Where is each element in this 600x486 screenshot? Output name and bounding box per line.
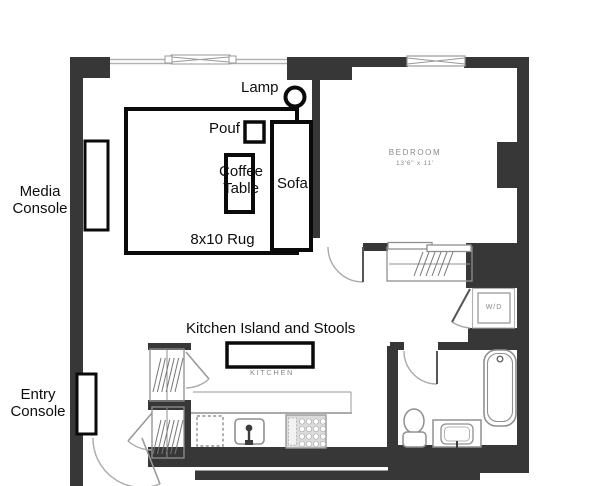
bedroom-door-swing-arc [328,247,363,282]
wd-door-leaf [452,289,470,322]
bathtub-inner [488,354,513,422]
lower-closet-door-leaf [128,413,152,441]
lamp-label: Lamp [241,80,279,97]
kitchen-fixtures [191,392,352,448]
bedroom-closet-slider-left [388,243,432,250]
bottom-wall-bathroom [388,445,529,473]
bedroom-corner-wall-block [466,243,529,288]
living-bedroom-divider-wall [312,66,320,238]
wd-bottom-wall [468,328,529,344]
pouf [245,122,264,142]
top-left-corner-wall [70,57,110,78]
coffee-table-label: Coffee Table [205,164,277,198]
bedroom-closet-slider-right [427,245,471,252]
dishwasher [197,416,223,446]
living-window-nub-right [229,56,236,63]
entry-console-label: Entry Console [0,387,76,421]
bedroom-room-label: BEDROOM 13'6" x 11' [355,148,475,167]
entry-console [77,374,96,434]
toilet-tank [403,432,426,447]
upper-closet-shelf-hatch [153,358,183,392]
bathroom-top-wall [438,342,529,350]
bedroom-room-dimensions: 13'6" x 11' [355,160,475,167]
media-console [85,141,108,230]
bedroom-door-jamb [363,243,388,251]
bottom-wall-kitchen [148,447,393,467]
floor-plan: Media Console Entry Console Lamp Pouf Co… [0,0,600,486]
floor-plan-drawing [0,0,600,486]
living-window-nub-left [165,56,172,63]
kitchen-faucet-base [245,440,253,445]
bathroom-door-swing-arc [404,351,437,384]
furniture [77,88,313,435]
toilet-bowl [404,409,424,433]
vanity-sink-inner [445,427,470,441]
upper-closet-door-arc [186,379,209,388]
media-console-label: Media Console [2,184,78,218]
rug-label: 8x10 Rug [155,232,290,249]
lamp [286,88,305,107]
kitchen-island [227,343,313,367]
kitchen-room-label: KITCHEN [226,368,318,377]
kitchen-island-label: Kitchen Island and Stools [186,321,355,338]
top-center-wall-thin [350,57,408,67]
bedroom-room-name: BEDROOM [355,148,475,157]
bathtub-faucet [497,356,503,362]
wd-label: W/D [475,304,513,311]
stove [286,415,326,448]
sofa-label: Sofa [277,176,308,193]
bathroom-left-wall [387,346,398,448]
stove-control-strip [289,418,297,445]
pouf-label: Pouf [209,121,240,138]
bedroom-pilaster [497,142,517,188]
upper-closet-door-leaf [186,352,209,379]
wd-door-swing-arc [452,322,470,328]
bathroom-fixtures [403,350,516,449]
